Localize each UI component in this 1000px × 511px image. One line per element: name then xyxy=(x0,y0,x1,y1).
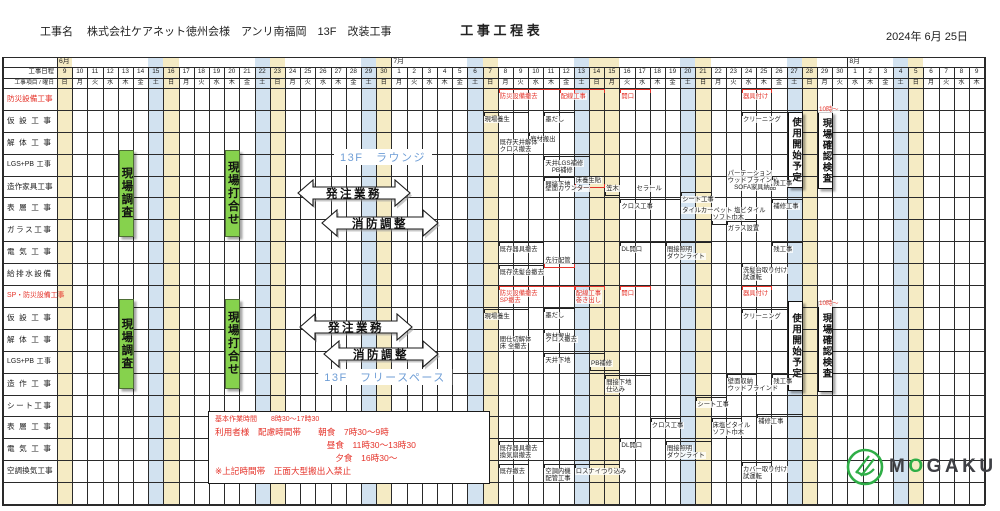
weekday-cell: 木 xyxy=(543,78,558,89)
task-annotation: 残工事 xyxy=(772,176,802,187)
day-number-cell: 5 xyxy=(452,67,467,78)
day-number-cell: 11 xyxy=(543,67,558,78)
annotation-text: ロスナイつり込み xyxy=(575,468,627,475)
annotation-text: 配線工事 xyxy=(560,93,587,100)
day-number-cell: 14 xyxy=(133,67,148,78)
task-annotation: 間接照明ダウンライト xyxy=(666,242,712,260)
milestone-bar: 現場調査 xyxy=(119,299,134,389)
day-number-cell: 22 xyxy=(711,67,726,78)
annotation-text: 補修工事 xyxy=(772,203,799,210)
day-number-cell: 28 xyxy=(802,67,817,78)
day-number-cell: 20 xyxy=(680,67,695,78)
task-period-arrow: 消防調整 xyxy=(323,340,443,373)
grid-line xyxy=(2,197,985,198)
weekday-cell: 水 xyxy=(847,78,862,89)
task-row-label: シート工事 xyxy=(3,395,55,417)
annotation-text: クリーニング xyxy=(742,313,782,320)
day-number-cell: 16 xyxy=(619,67,634,78)
annotation-text: クロス工事 xyxy=(651,422,684,429)
month-label: 7月 xyxy=(393,57,404,67)
annotation-text: 床 全撤去 xyxy=(499,343,528,350)
annotation-bracket xyxy=(712,221,727,225)
grid-line xyxy=(2,395,985,396)
annotation-text: 残工事 xyxy=(772,246,793,253)
arrow-label: 発注業務 xyxy=(325,187,382,201)
task-annotation: クリーニング xyxy=(742,309,788,320)
saturday-stripe xyxy=(680,57,695,504)
annotation-text: 試運転 xyxy=(742,473,763,480)
annotation-text: 配管工事 xyxy=(544,475,571,482)
weekday-cell: 月 xyxy=(285,78,300,89)
task-annotation: PB補修 xyxy=(590,360,620,371)
task-annotation: ロスナイつり込み xyxy=(575,464,627,475)
weekday-cell: 月 xyxy=(72,78,87,89)
weekday-cell: 火 xyxy=(513,78,528,89)
annotation-text: クロス撤去 xyxy=(544,336,577,343)
annotation-text: 既存洗髪台撤去 xyxy=(499,269,545,276)
annotation-text: 防災設備撤去 xyxy=(499,290,539,297)
task-row-label: 造作工事 xyxy=(3,373,55,395)
weekday-cell: 金 xyxy=(771,78,786,89)
annotation-text: 仕込み xyxy=(605,386,626,393)
milestone-box: 現場確認検査 xyxy=(818,112,833,190)
annotation-text: 試運転 xyxy=(742,274,763,281)
day-number-cell: 13 xyxy=(574,67,589,78)
task-annotation: 開口 xyxy=(620,286,650,297)
note-line: ※上記時間帯 正面大型搬出入禁止 xyxy=(215,465,483,478)
day-number-cell: 13 xyxy=(118,67,133,78)
day-number-cell: 27 xyxy=(331,67,346,78)
annotation-text: 既存天井解体 xyxy=(499,139,539,146)
task-annotation: パーテーションウッドブラインド SOFA家具納品 xyxy=(727,170,779,191)
annotation-text: ウッドブラインド xyxy=(727,385,779,392)
weekday-cell: 日 xyxy=(270,78,285,89)
weekday-cell: 水 xyxy=(528,78,543,89)
grid-line xyxy=(2,504,985,506)
task-row-label: 空調換気工事 xyxy=(3,460,55,482)
annotation-text: 壁面カウンター xyxy=(544,185,590,192)
annotation-text: PB補修 xyxy=(590,360,613,367)
task-row-label: 表層工事 xyxy=(3,416,55,438)
day-number-cell: 17 xyxy=(179,67,194,78)
day-number-cell: 9 xyxy=(513,67,528,78)
weekday-cell: 金 xyxy=(239,78,254,89)
task-annotation: 配線工事巻き出し xyxy=(575,286,605,304)
weekday-cell: 金 xyxy=(452,78,467,89)
weekday-cell: 土 xyxy=(467,78,482,89)
annotation-text: 巻き出し xyxy=(575,297,602,304)
weekday-cell: 月 xyxy=(711,78,726,89)
annotation-text: 壁面収納 xyxy=(727,378,754,385)
weekday-cell: 金 xyxy=(878,78,893,89)
task-annotation: 間接照明ダウンライト xyxy=(666,441,712,459)
annotation-text: 開口 xyxy=(620,290,635,297)
annotation-text: ダウンライト xyxy=(666,253,706,260)
day-number-cell: 19 xyxy=(209,67,224,78)
grid-line xyxy=(2,154,985,155)
corner-date-label: 工事日程 xyxy=(3,67,54,78)
task-annotation: 現場養生 xyxy=(484,112,530,123)
task-annotation: 10時〜 xyxy=(818,106,840,113)
logo-letter: K xyxy=(962,456,976,478)
annotation-text: DL開口 xyxy=(620,246,643,253)
annotation-text: 換気扇撤去 xyxy=(499,452,532,459)
day-number-cell: 30 xyxy=(832,67,847,78)
weekday-cell: 日 xyxy=(483,78,498,89)
sunday-stripe xyxy=(908,57,923,504)
task-row-label: 防災設備工事 xyxy=(3,88,55,110)
task-row-label: 表層工事 xyxy=(3,197,55,219)
day-number-cell: 23 xyxy=(270,67,285,78)
grid-line xyxy=(2,263,985,264)
task-annotation: 既存洗髪台撤去 xyxy=(499,265,545,276)
corner-item-label: 工事項目 / 曜日 xyxy=(3,78,54,89)
task-annotation: クロス工事 xyxy=(651,418,684,429)
weekday-cell: 木 xyxy=(863,78,878,89)
grid-line xyxy=(2,329,985,330)
saturday-stripe xyxy=(574,57,589,504)
project-title: 工事名株式会社ケアネット徳州会様 アンリ南福岡 13F 改装工事 xyxy=(40,23,392,39)
day-number-cell: 19 xyxy=(665,67,680,78)
task-annotation: 開口 xyxy=(620,89,650,100)
task-annotation: 配線工事 xyxy=(560,89,606,100)
day-number-cell: 29 xyxy=(817,67,832,78)
task-row-label: LGS+PB 工事 xyxy=(3,154,55,176)
sunday-stripe xyxy=(604,57,619,504)
day-number-cell: 1 xyxy=(391,67,406,78)
day-number-cell: 3 xyxy=(878,67,893,78)
day-number-cell: 21 xyxy=(695,67,710,78)
day-number-cell: 26 xyxy=(771,67,786,78)
day-number-cell: 22 xyxy=(255,67,270,78)
grid-line xyxy=(847,57,848,504)
milestone-box: 現場確認検査 xyxy=(818,301,833,392)
annotation-text: 現場養生 xyxy=(484,116,511,123)
weekday-cell: 月 xyxy=(817,78,832,89)
task-annotation: 既存器具撤去 xyxy=(499,242,545,253)
grid-line xyxy=(2,219,985,220)
task-annotation: シート工事 xyxy=(696,397,729,408)
weekday-cell: 土 xyxy=(148,78,163,89)
grid-line xyxy=(2,176,985,177)
task-annotation: 残工事 xyxy=(772,374,802,385)
weekday-cell: 土 xyxy=(361,78,376,89)
weekday-cell: 木 xyxy=(969,78,984,89)
company-logo: MOGAKU xyxy=(845,447,997,487)
task-row-label: 解体工事 xyxy=(3,329,55,351)
weekday-cell: 火 xyxy=(407,78,422,89)
task-row-label: LGS+PB 工事 xyxy=(3,351,55,373)
annotation-text: 天井下地 xyxy=(544,357,571,364)
annotation-text: 現場養生 xyxy=(484,313,511,320)
task-row-label: SP・防災設備工事 xyxy=(3,285,55,307)
day-number-cell: 1 xyxy=(847,67,862,78)
weekday-cell: 火 xyxy=(194,78,209,89)
task-annotation: 補修工事 xyxy=(757,414,803,425)
milestone-bar: 現場打合せ xyxy=(225,299,240,389)
day-number-cell: 23 xyxy=(726,67,741,78)
weekday-cell: 土 xyxy=(787,78,802,89)
weekday-cell: 土 xyxy=(574,78,589,89)
task-annotation: DL開口 xyxy=(620,242,666,253)
day-number-cell: 12 xyxy=(103,67,118,78)
annotation-text: 既存撤去 xyxy=(499,468,526,475)
annotation-text: 間接下地 xyxy=(605,379,632,386)
weekday-cell: 月 xyxy=(923,78,938,89)
task-annotation: 既存撤去 xyxy=(499,464,529,475)
annotation-text: PB補修 xyxy=(544,167,573,174)
weekday-cell: 日 xyxy=(908,78,923,89)
day-number-cell: 21 xyxy=(239,67,254,78)
page-title: 工 事 工 程 表 xyxy=(460,20,539,39)
day-number-cell: 5 xyxy=(908,67,923,78)
task-annotation: 墨だし xyxy=(544,308,574,319)
day-number-cell: 12 xyxy=(559,67,574,78)
annotation-bracket xyxy=(544,264,574,268)
sunday-stripe xyxy=(695,57,710,504)
day-number-cell: 17 xyxy=(635,67,650,78)
task-annotation: クリーニング xyxy=(742,112,788,123)
weekday-cell: 日 xyxy=(802,78,817,89)
weekday-cell: 火 xyxy=(619,78,634,89)
annotation-text: 天井LGS補修 xyxy=(544,160,584,167)
day-number-cell: 7 xyxy=(483,67,498,78)
task-annotation: 床塩ビタイルソフト巾木 xyxy=(712,418,752,436)
day-number-cell: 30 xyxy=(376,67,391,78)
sunday-stripe xyxy=(802,57,817,504)
zone-label-lounge: 13F ラウンジ xyxy=(334,149,432,165)
annotation-text: クリーニング xyxy=(742,116,782,123)
annotation-text: クロス撤去 xyxy=(499,146,532,153)
task-annotation: ガラス設置 xyxy=(727,221,760,232)
day-number-cell: 15 xyxy=(148,67,163,78)
annotation-text: 器具付け xyxy=(742,290,769,297)
annotation-text: 既存器具撤去 xyxy=(499,246,539,253)
task-row-label: 給排水設備 xyxy=(3,263,55,285)
annotation-text: SOFA家具納品 xyxy=(727,184,777,191)
grid-line xyxy=(2,241,985,242)
day-number-cell: 20 xyxy=(224,67,239,78)
task-annotation: シート工事 xyxy=(681,192,714,203)
weekday-cell: 金 xyxy=(665,78,680,89)
task-annotation: セラール xyxy=(636,185,663,192)
month-label: 8月 xyxy=(849,57,860,67)
weekday-cell: 木 xyxy=(437,78,452,89)
grid-line xyxy=(57,57,58,504)
day-number-cell: 28 xyxy=(346,67,361,78)
task-annotation: 既存器具撤去換気扇撤去 xyxy=(499,441,545,459)
day-number-cell: 2 xyxy=(407,67,422,78)
grid-line xyxy=(2,373,985,374)
day-number-cell: 8 xyxy=(954,67,969,78)
logo-letter: O xyxy=(908,456,923,478)
day-number-cell: 16 xyxy=(163,67,178,78)
task-period-arrow: 発注業務 xyxy=(297,179,415,212)
logo-mark-icon xyxy=(845,447,885,487)
milestone-bar: 現場調査 xyxy=(119,150,134,238)
weekday-cell: 火 xyxy=(939,78,954,89)
sunday-stripe xyxy=(589,57,604,504)
day-number-cell: 27 xyxy=(787,67,802,78)
task-annotation: 空調内機配管工事 xyxy=(544,464,574,482)
task-annotation: 補修工事 xyxy=(772,199,802,210)
task-row-label: 仮設工事 xyxy=(3,110,55,132)
weekday-cell: 日 xyxy=(57,78,72,89)
task-period-arrow: 消防調整 xyxy=(321,209,443,242)
task-annotation: 現場養生 xyxy=(484,309,530,320)
sunday-stripe xyxy=(163,57,178,504)
task-annotation: 壁面収納ウッドブラインド xyxy=(727,374,779,392)
day-number-cell: 6 xyxy=(467,67,482,78)
project-name: 株式会社ケアネット徳州会様 アンリ南福岡 13F 改装工事 xyxy=(87,26,392,38)
annotation-text: 器具付け xyxy=(742,93,769,100)
weekday-cell: 木 xyxy=(224,78,239,89)
day-number-cell: 2 xyxy=(863,67,878,78)
task-annotation: 間仕切解体床 全撤去 xyxy=(499,336,532,350)
logo-letter: U xyxy=(979,456,993,478)
weekday-cell: 土 xyxy=(893,78,908,89)
weekday-cell: 金 xyxy=(346,78,361,89)
annotation-text: 床養生貼 xyxy=(575,177,602,184)
grid-line xyxy=(2,88,985,89)
note-line: 夕食 16時30〜 xyxy=(215,452,483,465)
task-annotation: 間接下地仕込み xyxy=(605,375,651,393)
grid-line xyxy=(2,57,985,58)
weekday-cell: 金 xyxy=(133,78,148,89)
logo-letter: M xyxy=(889,456,905,478)
annotation-text: ダウンライト xyxy=(666,452,706,459)
day-number-cell: 14 xyxy=(589,67,604,78)
annotation-text: 墨だし xyxy=(544,116,565,123)
day-number-cell: 10 xyxy=(528,67,543,78)
weekday-cell: 火 xyxy=(726,78,741,89)
weekday-cell: 火 xyxy=(87,78,102,89)
day-number-cell: 9 xyxy=(969,67,984,78)
task-row-label: ガラス工事 xyxy=(3,219,55,241)
task-row-label: 造作家具工事 xyxy=(3,176,55,198)
annotation-text: 補修工事 xyxy=(757,418,784,425)
task-annotation: 洗髪台取り付け試運転 xyxy=(742,263,788,281)
task-annotation: 笠木 xyxy=(605,185,620,196)
weekday-cell: 日 xyxy=(376,78,391,89)
day-number-cell: 26 xyxy=(315,67,330,78)
annotation-text: 残工事 xyxy=(772,378,793,385)
annotation-text: DL開口 xyxy=(620,442,643,449)
grid-line xyxy=(2,460,985,461)
annotation-text: セラール xyxy=(636,185,663,192)
task-row-label: 電気工事 xyxy=(3,438,55,460)
logo-letter: A xyxy=(945,456,959,478)
task-annotation: 残工事 xyxy=(772,242,802,253)
weekday-cell: 水 xyxy=(103,78,118,89)
annotation-text: ウッドブラインド xyxy=(727,177,779,184)
task-annotation: 天井LGS補修 PB補修 xyxy=(544,156,590,174)
day-number-cell: 18 xyxy=(650,67,665,78)
task-annotation: 壁面カウンター xyxy=(544,185,590,192)
task-annotation: クロス工事 xyxy=(620,199,681,210)
note-line: 昼食 11時30〜13時30 xyxy=(215,439,483,452)
task-annotation: 10時〜 xyxy=(818,300,840,307)
grid-line xyxy=(2,307,985,308)
weekday-cell: 水 xyxy=(954,78,969,89)
task-annotation: 器具付け xyxy=(742,89,772,100)
weekday-cell: 日 xyxy=(589,78,604,89)
annotation-bracket xyxy=(590,367,620,371)
day-number-cell: 3 xyxy=(422,67,437,78)
weekday-cell: 火 xyxy=(300,78,315,89)
annotation-text: シート工事 xyxy=(696,401,729,408)
annotation-text: 間仕切解体 xyxy=(499,336,532,343)
weekday-cell: 月 xyxy=(604,78,619,89)
grid-line xyxy=(2,351,985,352)
task-annotation: 先行配管 xyxy=(544,257,574,268)
grid-line xyxy=(2,132,985,133)
weekday-cell: 水 xyxy=(422,78,437,89)
annotation-text: 先行配管 xyxy=(544,257,571,264)
annotation-text: クロス工事 xyxy=(620,203,653,210)
month-label: 6月 xyxy=(59,57,70,67)
weekday-cell: 木 xyxy=(650,78,665,89)
day-number-cell: 24 xyxy=(741,67,756,78)
note-line: 基本作業時間 8時30〜17時30 xyxy=(215,415,483,425)
weekday-cell: 水 xyxy=(741,78,756,89)
day-number-cell: 25 xyxy=(300,67,315,78)
weekday-cell: 木 xyxy=(756,78,771,89)
day-number-cell: 9 xyxy=(57,67,72,78)
saturday-stripe xyxy=(893,57,908,504)
day-number-cell: 10 xyxy=(72,67,87,78)
project-label: 工事名 xyxy=(40,26,73,38)
day-number-cell: 18 xyxy=(194,67,209,78)
issue-date: 2024年 6月 25日 xyxy=(886,28,968,44)
annotation-text: ガラス設置 xyxy=(727,225,760,232)
grid-line xyxy=(2,285,985,286)
weekday-cell: 木 xyxy=(118,78,133,89)
annotation-text: 墨だし xyxy=(544,312,565,319)
day-number-cell: 15 xyxy=(604,67,619,78)
annotation-text: パーテーション xyxy=(727,170,773,177)
weekday-cell: 月 xyxy=(179,78,194,89)
weekday-cell: 火 xyxy=(832,78,847,89)
annotation-text: 10時〜 xyxy=(818,300,840,307)
task-annotation: 防災設備撤去SP撤去 xyxy=(499,286,575,304)
task-row-label: 解体工事 xyxy=(3,132,55,154)
weekday-cell: 金 xyxy=(559,78,574,89)
weekday-cell: 月 xyxy=(498,78,513,89)
day-number-cell: 29 xyxy=(361,67,376,78)
day-number-cell: 8 xyxy=(498,67,513,78)
weekday-cell: 水 xyxy=(635,78,650,89)
weekday-cell: 月 xyxy=(391,78,406,89)
annotation-text: 笠木 xyxy=(605,185,620,192)
logo-letter: G xyxy=(927,456,942,478)
annotation-text: 残工事 xyxy=(772,180,793,187)
annotation-text: SP撤去 xyxy=(499,297,522,304)
weekday-cell: 木 xyxy=(331,78,346,89)
sunday-stripe xyxy=(57,57,72,504)
weekday-cell: 日 xyxy=(163,78,178,89)
grid-line xyxy=(2,482,985,483)
task-annotation: 既存天井解体クロス撤去 xyxy=(499,139,539,153)
day-number-cell: 11 xyxy=(87,67,102,78)
day-number-cell: 6 xyxy=(923,67,938,78)
day-number-cell: 25 xyxy=(756,67,771,78)
work-hours-note: 基本作業時間 8時30〜17時30 利用者様 配慮時間帯 朝食 7時30〜9時 … xyxy=(208,411,490,484)
grid-line xyxy=(2,438,985,439)
task-annotation: クロス撤去 xyxy=(544,336,577,343)
annotation-text: 10時〜 xyxy=(818,106,840,113)
grid-line xyxy=(2,416,985,417)
